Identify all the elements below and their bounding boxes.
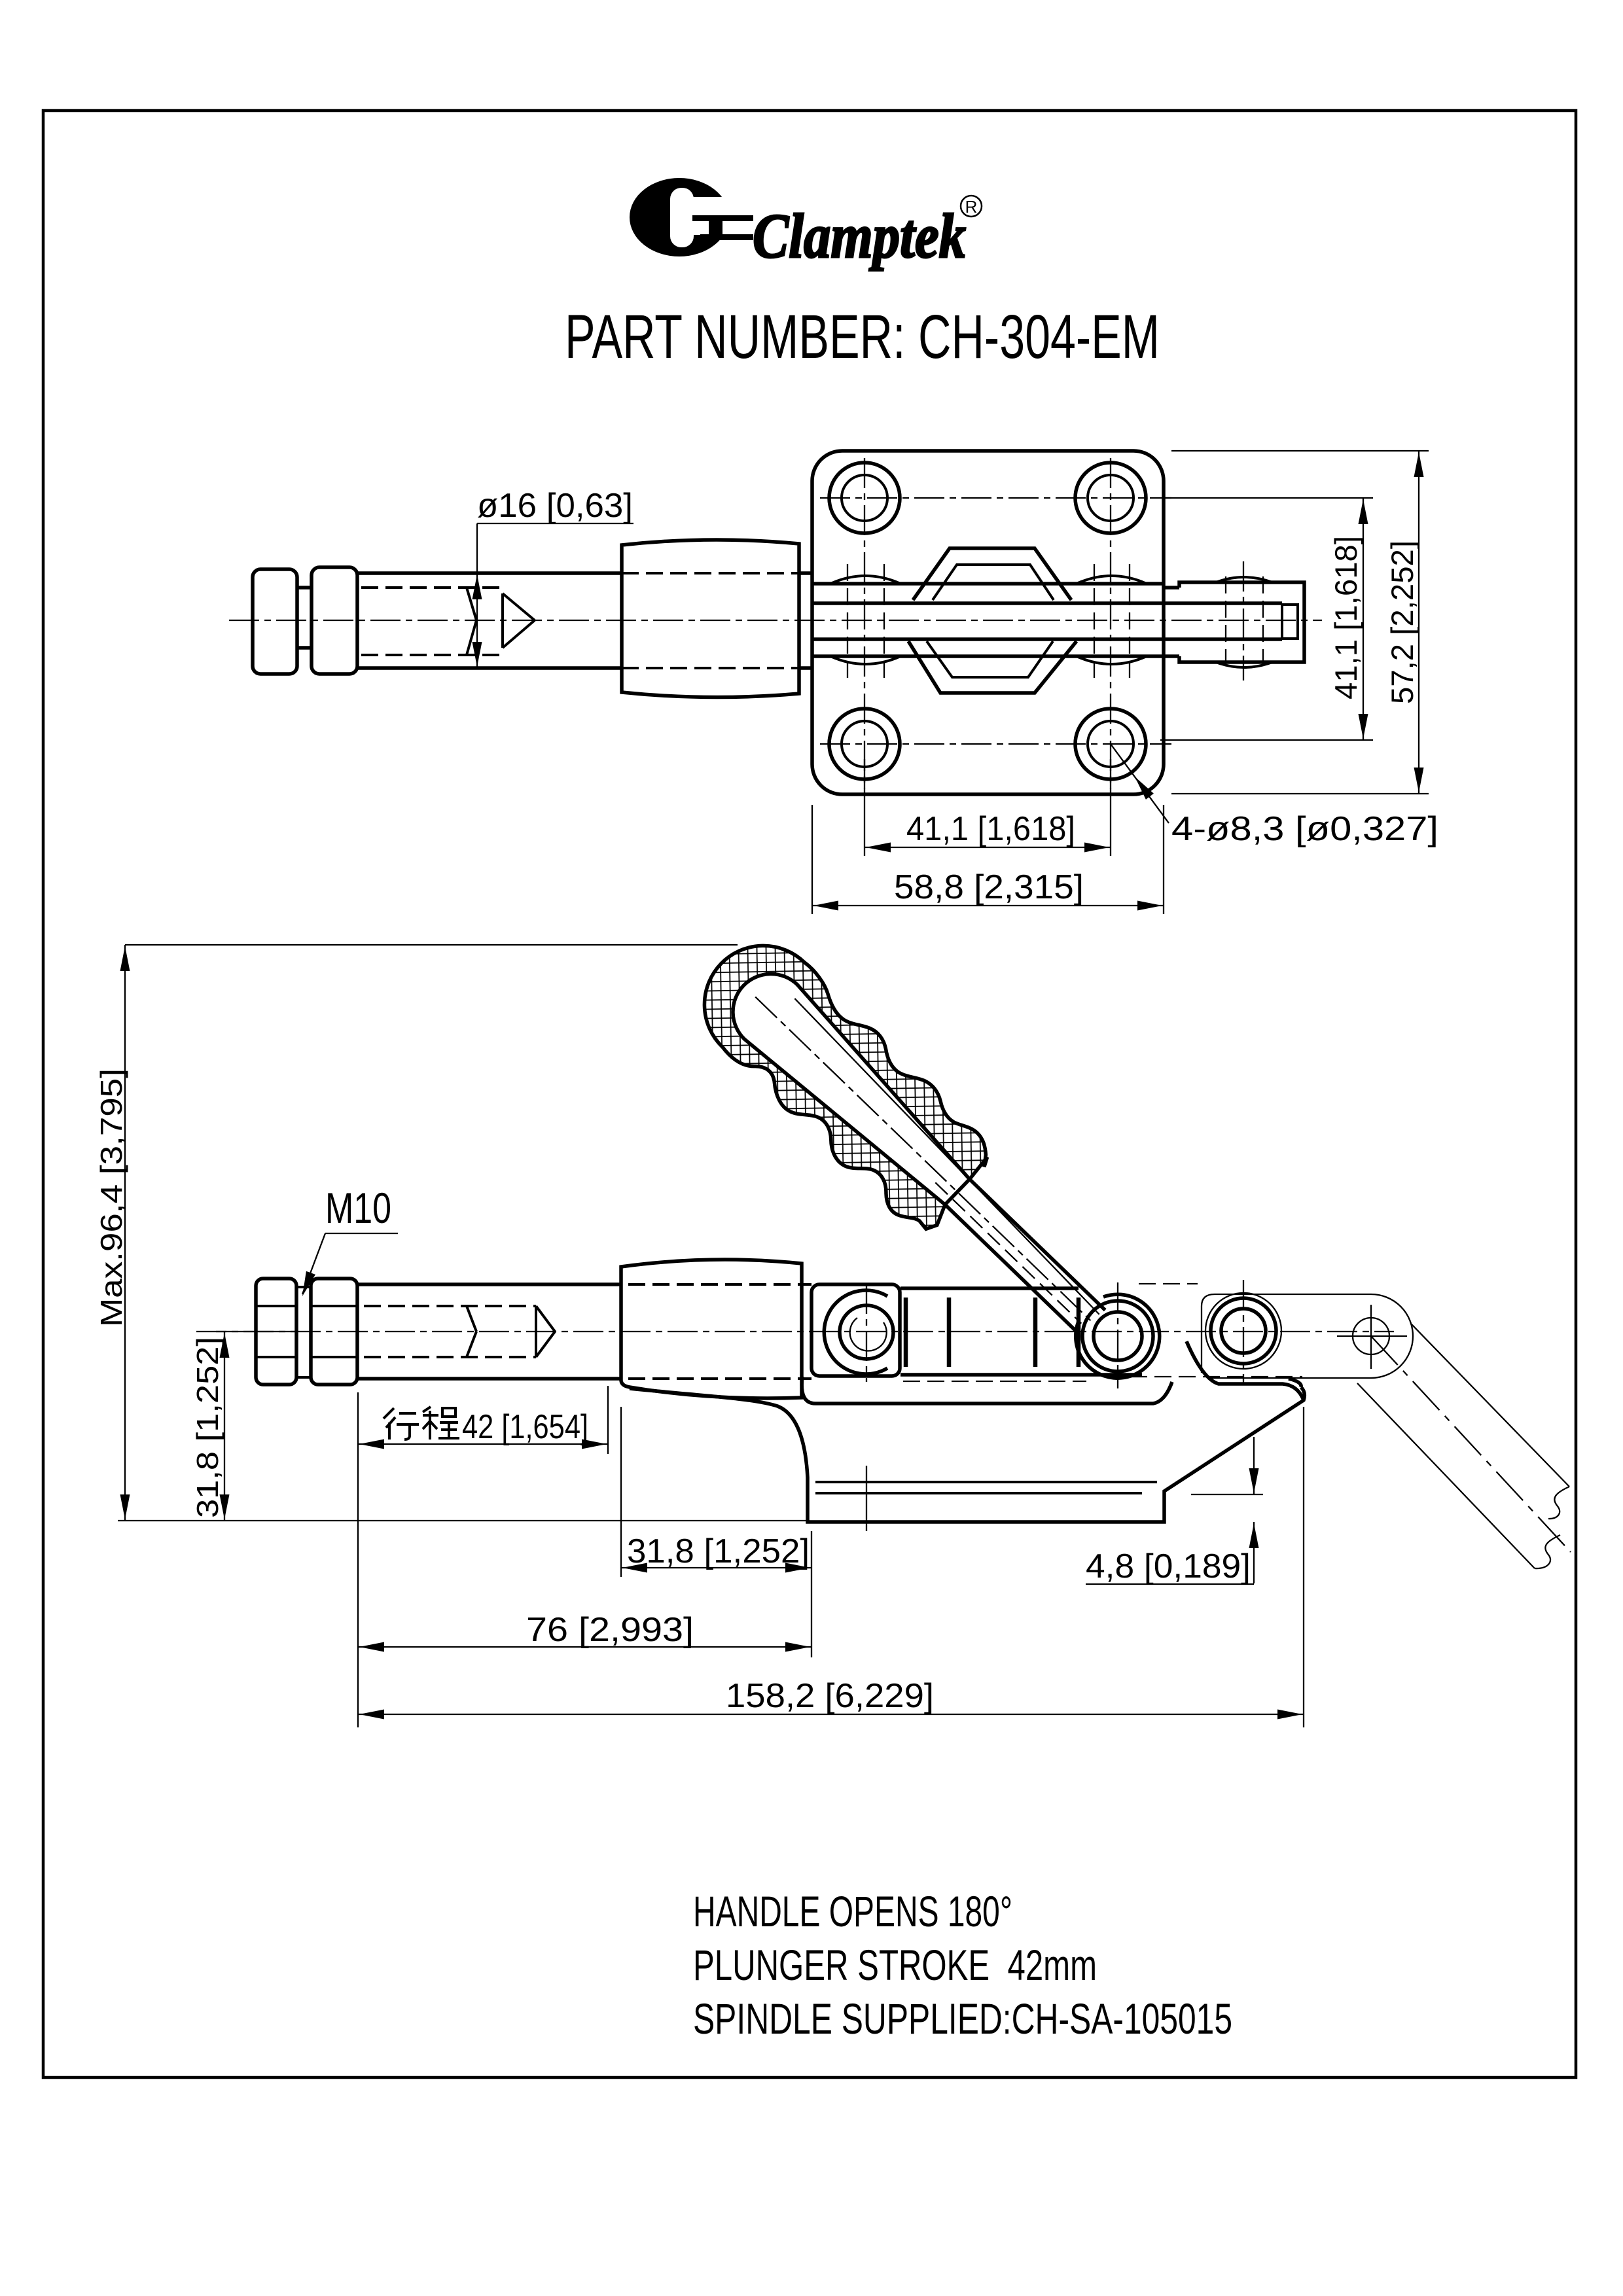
svg-text:158,2 [6,229]: 158,2 [6,229] [726, 1677, 934, 1715]
svg-text:41,1 [1,618]: 41,1 [1,618] [1329, 536, 1363, 699]
svg-text:R: R [965, 197, 978, 217]
svg-text:Max.96,4 [3,795]: Max.96,4 [3,795] [94, 1069, 128, 1327]
svg-text:31,8 [1,252]: 31,8 [1,252] [627, 1532, 810, 1570]
svg-text:4,8 [0,189]: 4,8 [0,189] [1086, 1547, 1251, 1585]
svg-text:42 [1,654]: 42 [1,654] [462, 1408, 588, 1446]
svg-text:31,8 [1,252]: 31,8 [1,252] [190, 1337, 224, 1518]
svg-text:ø16 [0,63]: ø16 [0,63] [477, 487, 633, 525]
svg-text:41,1 [1,618]: 41,1 [1,618] [906, 810, 1075, 848]
svg-text:57,2 [2,252]: 57,2 [2,252] [1385, 540, 1419, 704]
svg-text:Clamptek: Clamptek [753, 201, 966, 271]
svg-text:HANDLE OPENS 180°: HANDLE OPENS 180° [693, 1887, 1012, 1935]
svg-text:76 [2,993]: 76 [2,993] [526, 1611, 694, 1649]
svg-text:M10: M10 [325, 1184, 391, 1232]
svg-text:4-ø8,3 [ø0,327]: 4-ø8,3 [ø0,327] [1171, 810, 1438, 848]
svg-text:PART NUMBER: CH-304-EM: PART NUMBER: CH-304-EM [565, 302, 1160, 372]
svg-text:PLUNGER STROKE 42mm: PLUNGER STROKE 42mm [693, 1941, 1097, 1989]
svg-text:58,8 [2,315]: 58,8 [2,315] [894, 868, 1084, 906]
svg-text:SPINDLE SUPPLIED:CH-SA-105015: SPINDLE SUPPLIED:CH-SA-105015 [693, 1994, 1232, 2043]
